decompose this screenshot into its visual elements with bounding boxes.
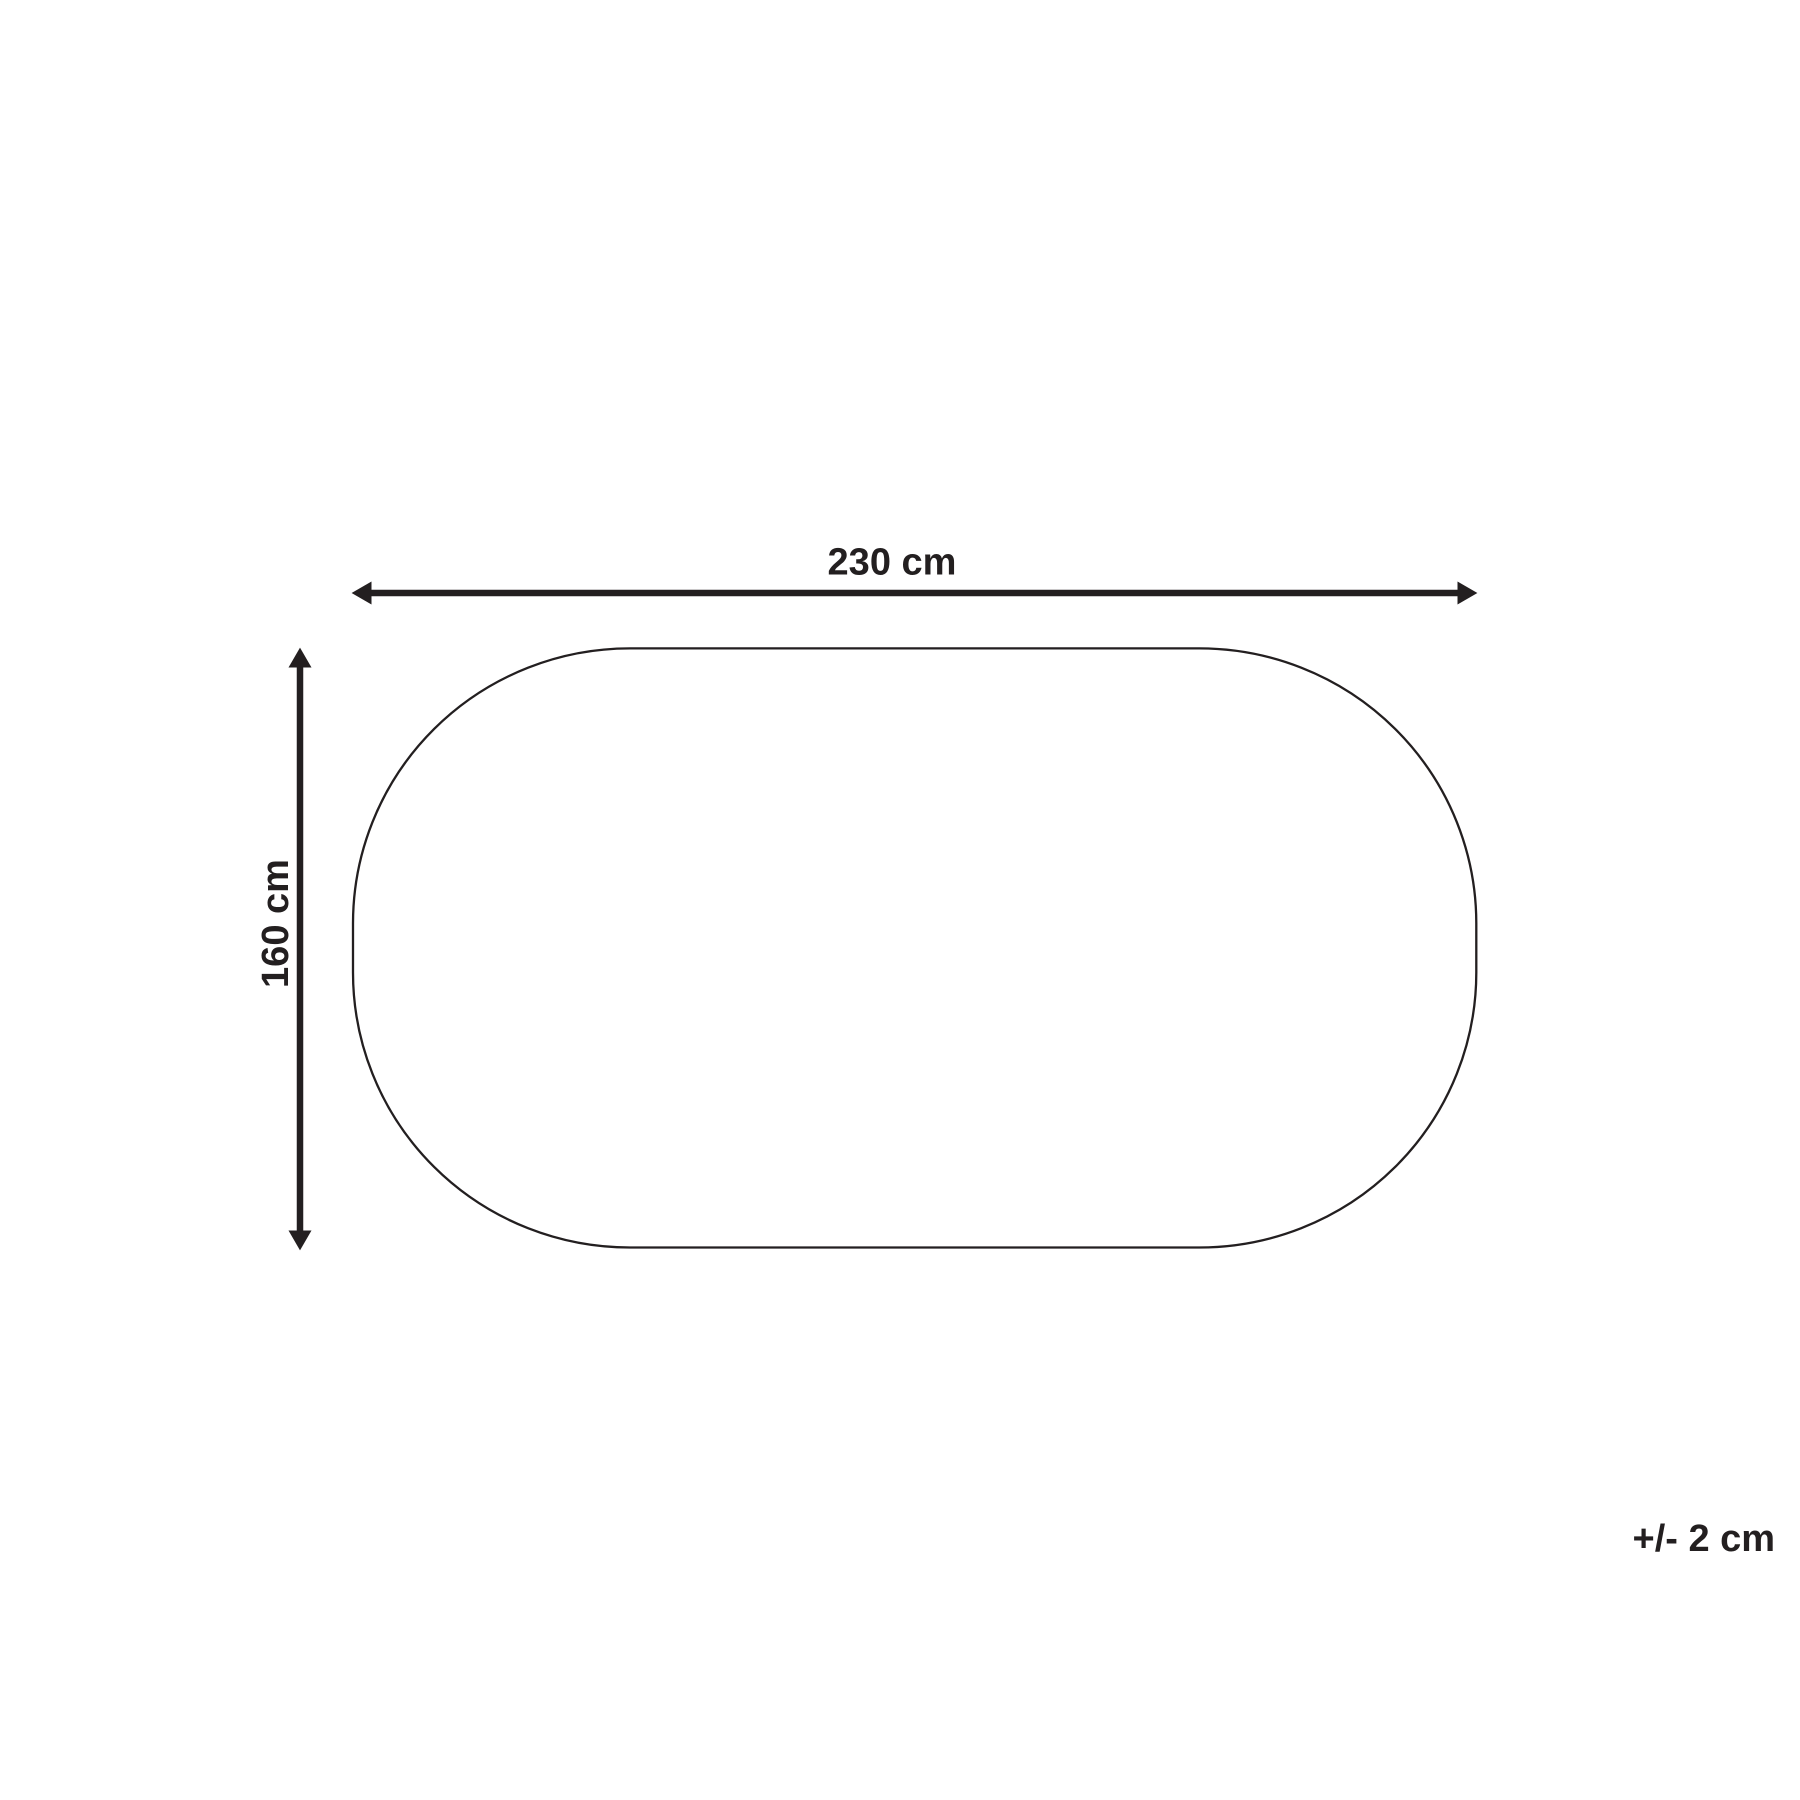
svg-text:160 cm: 160 cm: [255, 859, 297, 988]
svg-text:230 cm: 230 cm: [828, 542, 957, 584]
svg-text:+/- 2 cm: +/- 2 cm: [1633, 1518, 1776, 1560]
